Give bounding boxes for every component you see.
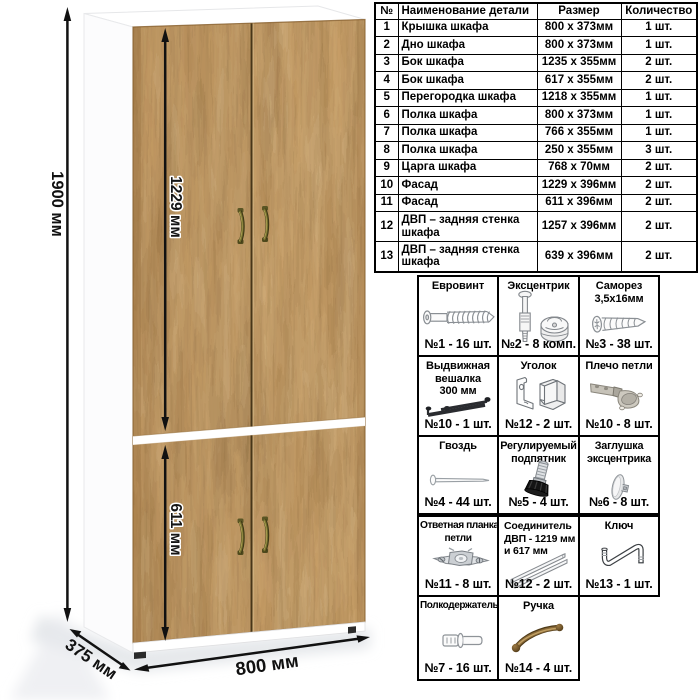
svg-text:611 мм: 611 мм (167, 503, 184, 555)
svg-text:1229 мм: 1229 мм (167, 176, 184, 238)
svg-text:1900 мм: 1900 мм (48, 171, 66, 237)
